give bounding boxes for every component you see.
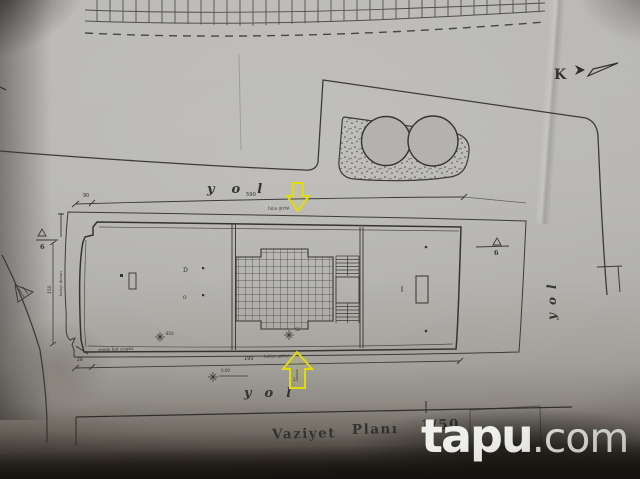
left-room-marks: D o [120,267,204,301]
entrance-label-top: bina girişi [268,205,290,211]
dimension-label-left: 150 [47,285,53,294]
dimension-label-top-total: 590 [246,192,256,198]
tree-circle-left [362,117,411,166]
dimension-label-bottom-total: 190 [244,356,254,362]
dimension-line-bottom [72,358,463,371]
elevation-label-left: 850 [166,331,174,336]
edge-mark [0,87,6,90]
photo-of-site-plan: K yol yol yol 90 590 [0,0,640,479]
tapu-watermark: tapu.com [421,413,628,459]
elevation-label-right: 52 [295,327,301,332]
section-marker-right [476,238,509,247]
dimension-label-bottom-left: 28 [77,357,83,363]
north-arrow-small-icon [575,65,585,75]
north-arrow: K [554,63,618,83]
section-marker-left [36,213,64,240]
tree-circle-right [408,116,458,166]
section-marker-left-label: 6 [40,243,45,251]
entrance-arrow-top-icon [287,183,309,211]
road-centerline-dashed [85,22,545,36]
watermark-tld: .com [532,414,629,462]
plan-title-word1: Vaziyet [271,425,336,442]
left-note: bahçe duvarı [58,270,63,296]
north-arrow-long-icon [588,63,618,76]
road-label-top: yol [206,182,279,197]
faint-fold-line [239,55,241,150]
watermark-brand: tapu [421,409,532,463]
section-marker-right-label: 6 [494,249,499,257]
stair-core-grid [236,249,333,329]
right-room-marks [402,246,428,333]
dimension-label-top-left: 90 [83,193,89,199]
room-letter-d: D [183,267,188,274]
cadastral-strip [85,0,545,36]
entrance-label-bottom: bahçe girişi [264,353,290,359]
north-label: K [554,67,567,83]
planting-bed [339,116,469,181]
road-label-right: yol [545,276,559,321]
stairs [336,256,359,323]
benchmark-label: 0.00 [221,368,230,373]
room-letter-o: o [183,294,187,301]
garden-wall-curve [2,255,47,443]
